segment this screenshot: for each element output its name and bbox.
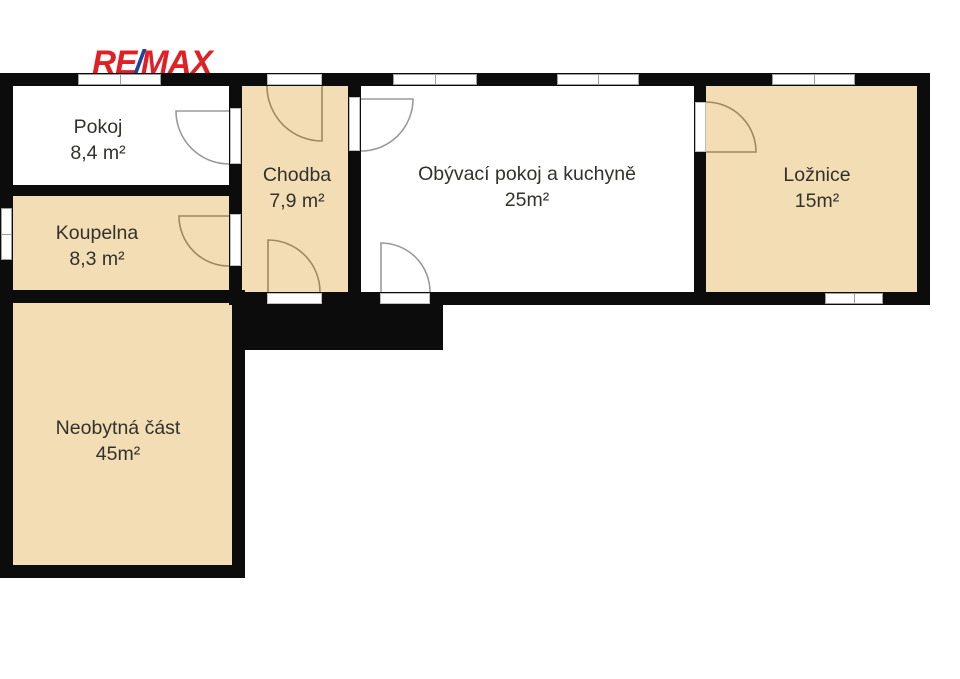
wall-neobytna-bottom bbox=[0, 565, 245, 578]
room-label-koupelna: Koupelna 8,3 m² bbox=[56, 220, 138, 272]
wall-pokoj-koupelna bbox=[0, 185, 242, 196]
wall-left bbox=[0, 73, 13, 578]
room-name: Chodba bbox=[263, 162, 331, 188]
room-name: Koupelna bbox=[56, 220, 138, 246]
threshold-koupelna bbox=[230, 214, 241, 266]
window-living-top-2 bbox=[557, 74, 639, 85]
room-name: Ložnice bbox=[783, 162, 850, 188]
floor-plan: RE/MAX Pokoj 8,4 m² bbox=[0, 0, 960, 679]
room-area: 8,3 m² bbox=[56, 246, 138, 272]
threshold-living-bottom bbox=[380, 293, 430, 304]
room-label-pokoj: Pokoj 8,4 m² bbox=[70, 114, 125, 166]
wall-right bbox=[917, 73, 930, 305]
room-name: Neobytná část bbox=[56, 415, 181, 441]
window-pokoj-top bbox=[78, 74, 161, 85]
room-label-neobytna: Neobytná část 45m² bbox=[56, 415, 181, 467]
window-loznice-top bbox=[772, 74, 855, 85]
room-name: Obývací pokoj a kuchyně bbox=[418, 161, 636, 187]
window-living-top-1 bbox=[393, 74, 477, 85]
room-area: 45m² bbox=[56, 441, 181, 467]
window-loznice-bottom bbox=[825, 293, 883, 304]
threshold-chodba-bottom bbox=[267, 293, 322, 304]
threshold-loznice bbox=[695, 102, 706, 152]
room-label-obyvaci: Obývací pokoj a kuchyně 25m² bbox=[418, 161, 636, 213]
room-label-loznice: Ložnice 15m² bbox=[783, 162, 850, 214]
window-koupelna-left bbox=[1, 208, 12, 260]
room-area: 15m² bbox=[783, 188, 850, 214]
threshold-pokoj bbox=[230, 108, 241, 164]
threshold-entrance-top bbox=[267, 74, 322, 85]
room-area: 8,4 m² bbox=[70, 140, 125, 166]
room-area: 7,9 m² bbox=[263, 188, 331, 214]
room-area: 25m² bbox=[418, 187, 636, 213]
wall-koupelna-bottom bbox=[0, 290, 245, 303]
threshold-living bbox=[349, 97, 360, 151]
room-label-chodba: Chodba 7,9 m² bbox=[263, 162, 331, 214]
room-name: Pokoj bbox=[70, 114, 125, 140]
